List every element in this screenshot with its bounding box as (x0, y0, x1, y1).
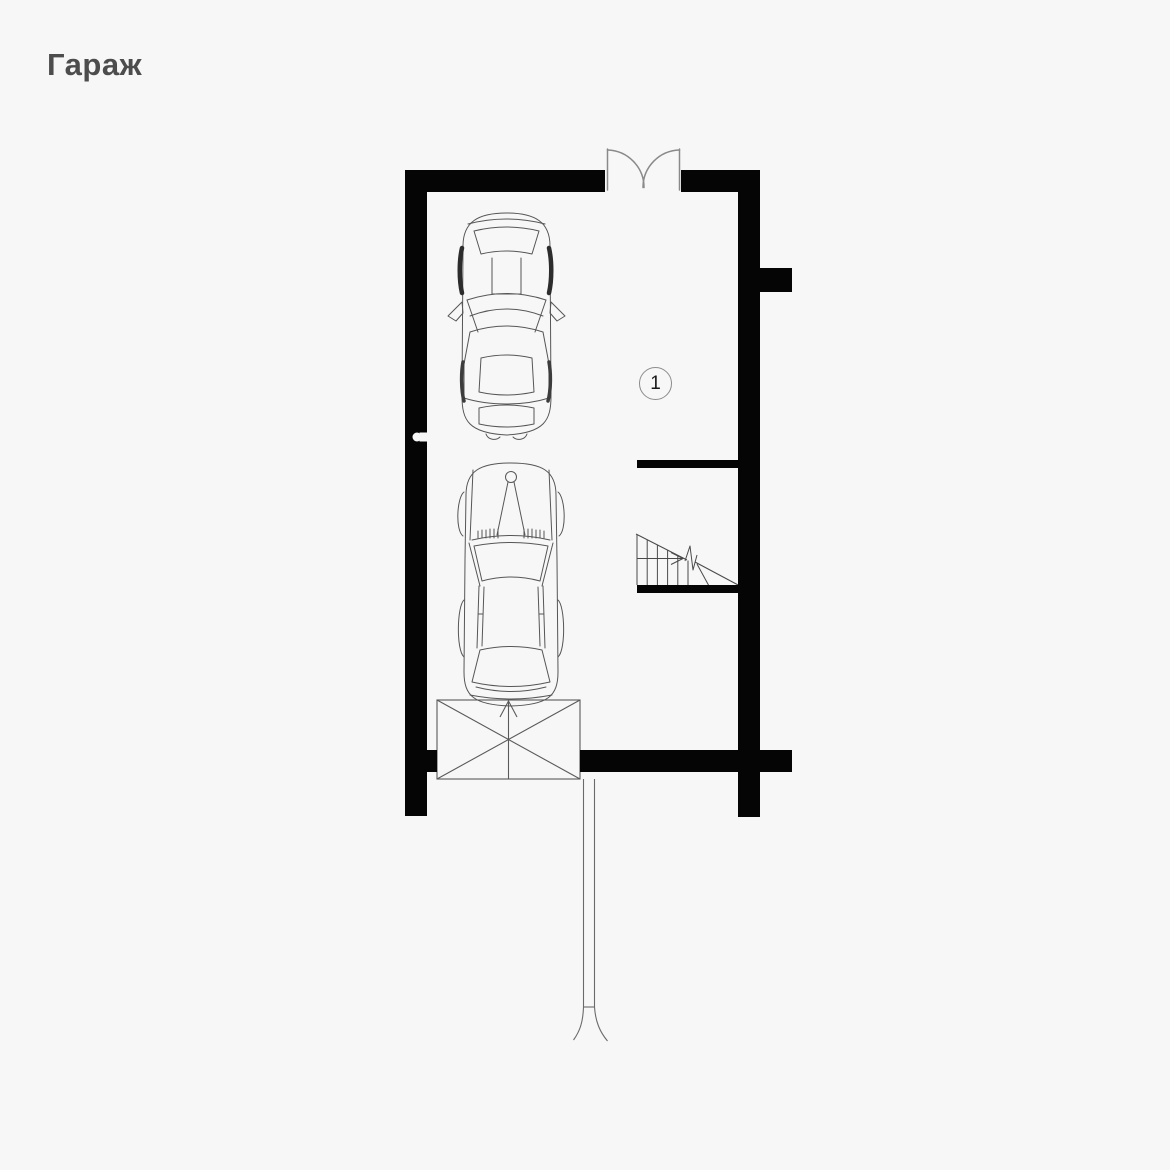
car-sedan-top-view-icon (458, 463, 564, 706)
garage-door-x-panel-icon (437, 700, 580, 779)
room-number-badge: 1 (639, 367, 672, 400)
floor-plan (0, 0, 1170, 1170)
car-suv-top-view-icon (448, 213, 565, 439)
floor-plan-page: Гараж (0, 0, 1170, 1170)
room-number-label: 1 (650, 373, 661, 395)
staircase-with-up-arrow-icon (636, 534, 740, 586)
driveway-path-icon (574, 779, 608, 1041)
wall-sleeve-icon (413, 433, 428, 442)
double-swing-door-icon (608, 149, 680, 190)
